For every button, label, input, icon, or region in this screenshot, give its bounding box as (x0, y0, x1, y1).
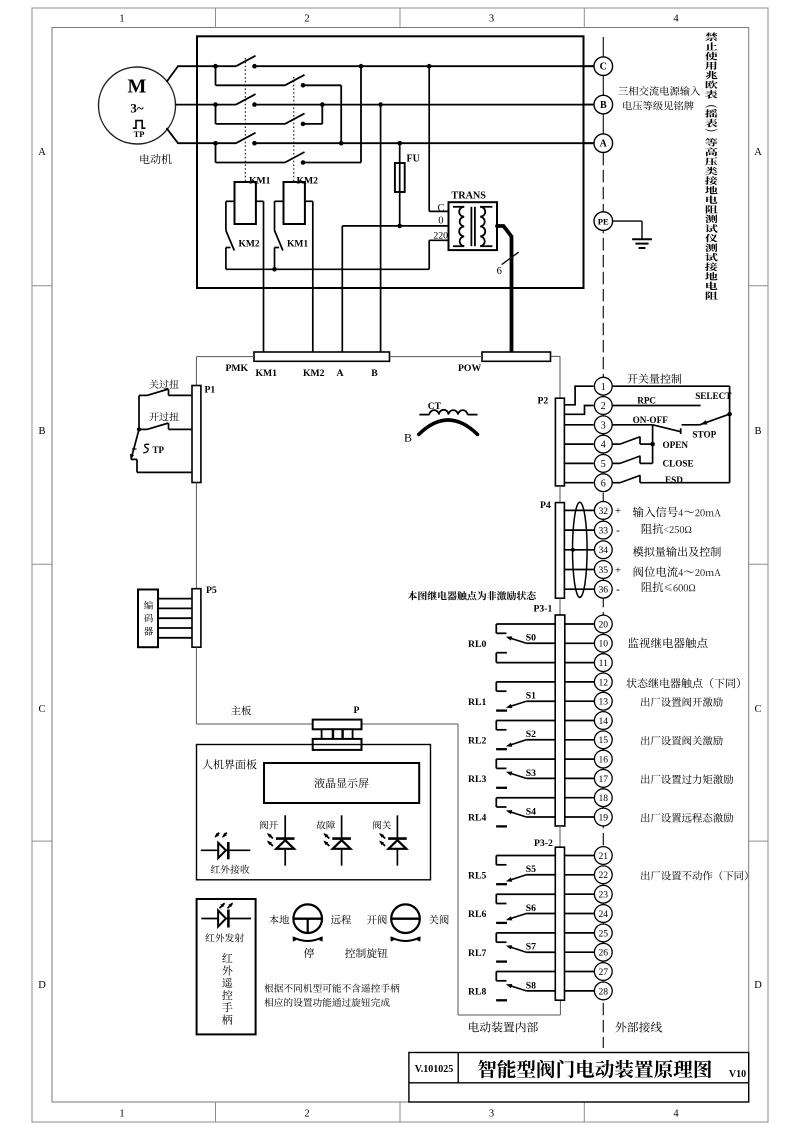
svg-text:28: 28 (599, 986, 609, 997)
svg-text:RL8: RL8 (468, 987, 486, 998)
svg-text:A: A (600, 139, 608, 150)
svg-text:S7: S7 (526, 942, 536, 953)
svg-text:RL2: RL2 (468, 735, 486, 746)
svg-text:3~: 3~ (130, 101, 144, 116)
svg-text:1: 1 (119, 1109, 124, 1120)
svg-text:C: C (754, 704, 761, 715)
svg-text:25: 25 (599, 928, 609, 939)
svg-text:19: 19 (599, 812, 609, 823)
svg-text:14: 14 (599, 716, 609, 727)
svg-text:4: 4 (673, 14, 679, 25)
svg-text:D: D (754, 980, 762, 991)
svg-text:3: 3 (601, 420, 606, 431)
svg-text:5: 5 (601, 459, 606, 470)
svg-text:24: 24 (599, 909, 609, 920)
svg-text:-: - (616, 524, 620, 536)
svg-text:P1: P1 (205, 385, 216, 396)
svg-text:S2: S2 (526, 729, 536, 740)
svg-text:P4: P4 (540, 500, 551, 511)
svg-text:POW: POW (458, 363, 481, 374)
svg-text:KM1: KM1 (256, 368, 278, 379)
svg-text:1: 1 (119, 14, 124, 25)
svg-text:11: 11 (599, 658, 608, 669)
svg-text:B: B (404, 431, 412, 445)
svg-text:3: 3 (489, 14, 494, 25)
svg-text:S0: S0 (526, 633, 536, 644)
svg-text:TP: TP (153, 445, 165, 455)
svg-text:KM1: KM1 (287, 240, 308, 250)
svg-text:13: 13 (599, 697, 609, 708)
svg-text:17: 17 (599, 774, 609, 785)
svg-text:A: A (754, 147, 762, 158)
svg-text:FU: FU (407, 154, 420, 165)
svg-text:TRANS: TRANS (451, 191, 486, 202)
svg-text:RL1: RL1 (468, 697, 486, 708)
svg-text:27: 27 (599, 967, 609, 978)
svg-text:TP: TP (134, 129, 145, 139)
svg-text:32: 32 (599, 506, 609, 517)
svg-text:RL3: RL3 (468, 774, 486, 785)
svg-text:P3-2: P3-2 (534, 838, 553, 849)
svg-text:20: 20 (599, 619, 609, 630)
svg-text:PMK: PMK (226, 363, 249, 374)
svg-text:A: A (337, 368, 344, 379)
svg-text:C: C (600, 62, 607, 73)
svg-text:P5: P5 (206, 585, 217, 596)
svg-text:P3-1: P3-1 (534, 604, 553, 615)
svg-text:S1: S1 (526, 691, 536, 702)
svg-text:S8: S8 (526, 980, 536, 991)
svg-text:2: 2 (304, 1109, 309, 1120)
svg-text:0: 0 (438, 215, 443, 226)
svg-text:OPEN: OPEN (663, 440, 689, 450)
svg-text:6: 6 (601, 478, 606, 489)
svg-text:10: 10 (599, 639, 609, 650)
svg-text:P2: P2 (538, 396, 549, 407)
svg-text:6: 6 (497, 266, 502, 277)
svg-text:16: 16 (599, 755, 609, 766)
svg-text:220: 220 (433, 231, 448, 242)
svg-text:33: 33 (599, 526, 609, 537)
svg-text:C: C (437, 203, 444, 214)
svg-text:34: 34 (599, 545, 609, 556)
svg-text:B: B (754, 426, 761, 437)
svg-text:B: B (371, 368, 378, 379)
svg-text:2: 2 (304, 14, 309, 25)
svg-text:36: 36 (599, 585, 609, 596)
svg-text:RL6: RL6 (468, 909, 486, 920)
svg-text:S4: S4 (526, 806, 536, 817)
svg-text:+: + (615, 564, 621, 576)
svg-text:21: 21 (599, 851, 609, 862)
svg-text:18: 18 (599, 793, 609, 804)
svg-text:RL5: RL5 (468, 870, 486, 881)
svg-text:V10: V10 (729, 1069, 746, 1080)
svg-text:S3: S3 (526, 768, 536, 779)
svg-text:15: 15 (599, 735, 609, 746)
svg-text:P: P (354, 705, 360, 716)
svg-text:V.101025: V.101025 (415, 1064, 453, 1075)
svg-text:-: - (616, 583, 620, 595)
svg-text:C: C (38, 704, 45, 715)
svg-text:22: 22 (599, 870, 609, 881)
svg-text:A: A (38, 147, 46, 158)
svg-text:2: 2 (601, 401, 606, 412)
svg-text:RPC: RPC (637, 395, 656, 405)
svg-text:CLOSE: CLOSE (663, 458, 694, 468)
svg-text:26: 26 (599, 948, 609, 959)
svg-text:1: 1 (601, 382, 606, 393)
svg-text:M: M (128, 76, 147, 98)
svg-text:35: 35 (599, 565, 609, 576)
svg-text:KM2: KM2 (239, 240, 260, 250)
svg-text:D: D (38, 980, 46, 991)
svg-text:12: 12 (599, 677, 609, 688)
svg-text:4: 4 (601, 440, 606, 451)
svg-text:KM2: KM2 (303, 368, 325, 379)
svg-text:STOP: STOP (692, 429, 716, 439)
svg-text:S5: S5 (526, 864, 536, 875)
svg-text:SELECT: SELECT (695, 391, 731, 401)
svg-text:4: 4 (673, 1109, 679, 1120)
svg-text:3: 3 (489, 1109, 494, 1120)
svg-text:RL0: RL0 (468, 639, 486, 650)
svg-text:B: B (38, 426, 45, 437)
svg-text:+: + (615, 505, 621, 517)
svg-text:RL7: RL7 (468, 948, 486, 959)
svg-text:S6: S6 (526, 903, 536, 914)
svg-text:23: 23 (599, 890, 609, 901)
svg-text:RL4: RL4 (468, 813, 486, 824)
svg-text:B: B (600, 100, 607, 111)
svg-text:PE: PE (598, 216, 609, 226)
svg-text:ESD: ESD (665, 475, 683, 485)
svg-text:ON-OFF: ON-OFF (633, 415, 669, 425)
